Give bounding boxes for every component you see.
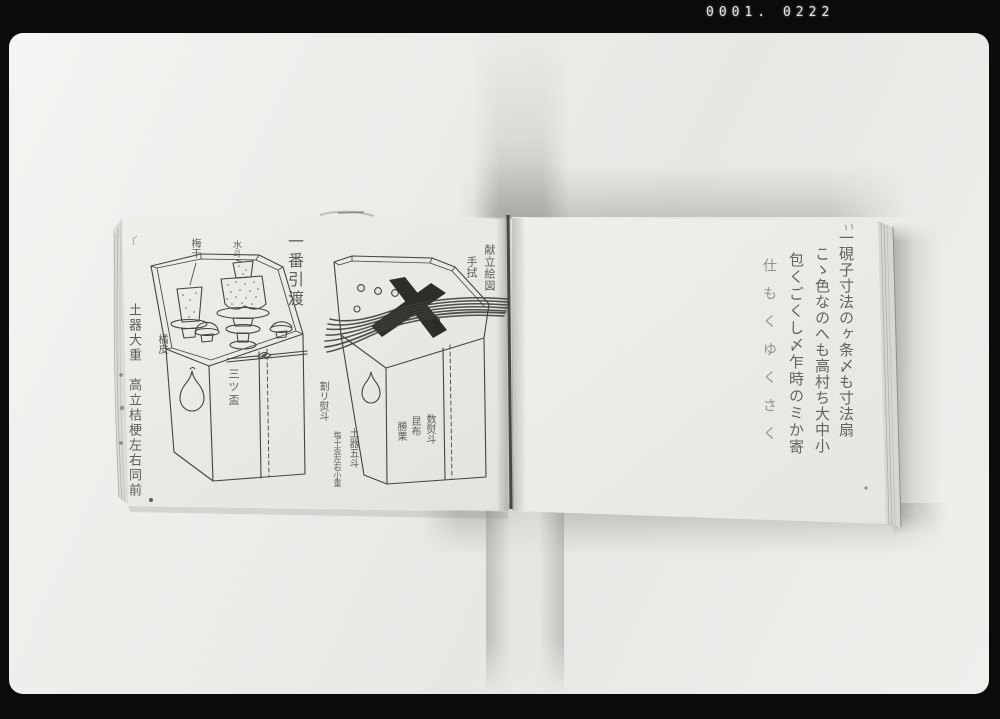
caption-tenugui: 手拭 bbox=[466, 256, 477, 278]
calligraphy-column-3: 包くごくし〆乍時のミか寄 bbox=[788, 252, 803, 456]
caption-ichiban-hikiwatashi: 一番引渡 bbox=[286, 233, 302, 309]
shadow-bottom-strip bbox=[486, 503, 564, 694]
label-kippi: 橘皮 bbox=[156, 334, 166, 354]
label-umeboshi: 梅干 bbox=[189, 238, 199, 258]
film-frame: 0001. 0222 bbox=[0, 0, 1000, 719]
label-kachiguri: 勝栗 bbox=[395, 421, 405, 441]
calligraphy-column-2: こゝ色なのへも高村ち大中小 bbox=[814, 246, 829, 454]
film-counter: 0001. 0222 bbox=[706, 5, 834, 20]
calligraphy-column-4: 仕もくゆくさく bbox=[762, 258, 776, 454]
calligraphy-column-1: 一硯子寸法のヶ条〆も寸法扇 bbox=[838, 230, 853, 438]
shadow-top-strip bbox=[473, 33, 569, 219]
caption-doki-goto: 土器五斗 bbox=[347, 428, 357, 468]
caption-shio-note: 塩十盃左右小重 bbox=[333, 431, 341, 487]
shadow-bottom-band bbox=[421, 503, 949, 555]
photograph: 土器大重 高立桔梗左右同前 梅干 水斗 一番引渡 橘皮 三ツ盃 献立絵図 手拭 … bbox=[9, 33, 989, 694]
label-konbu: 昆布 bbox=[409, 416, 419, 436]
left-margin-note: 土器大重 高立桔梗左右同前 bbox=[127, 303, 140, 498]
label-kazu-noshi: 数熨斗 bbox=[424, 414, 434, 444]
caption-kondate-ezu: 献立絵図 bbox=[484, 244, 495, 292]
shadow-top-band bbox=[459, 165, 909, 217]
label-mizunomi: 水斗 bbox=[231, 240, 240, 258]
label-mitsusakazuki: 三ツ盃 bbox=[228, 368, 239, 407]
caption-wari-noshi: 割リ熨斗 bbox=[317, 381, 327, 421]
shadow-fore-edge bbox=[893, 223, 941, 535]
